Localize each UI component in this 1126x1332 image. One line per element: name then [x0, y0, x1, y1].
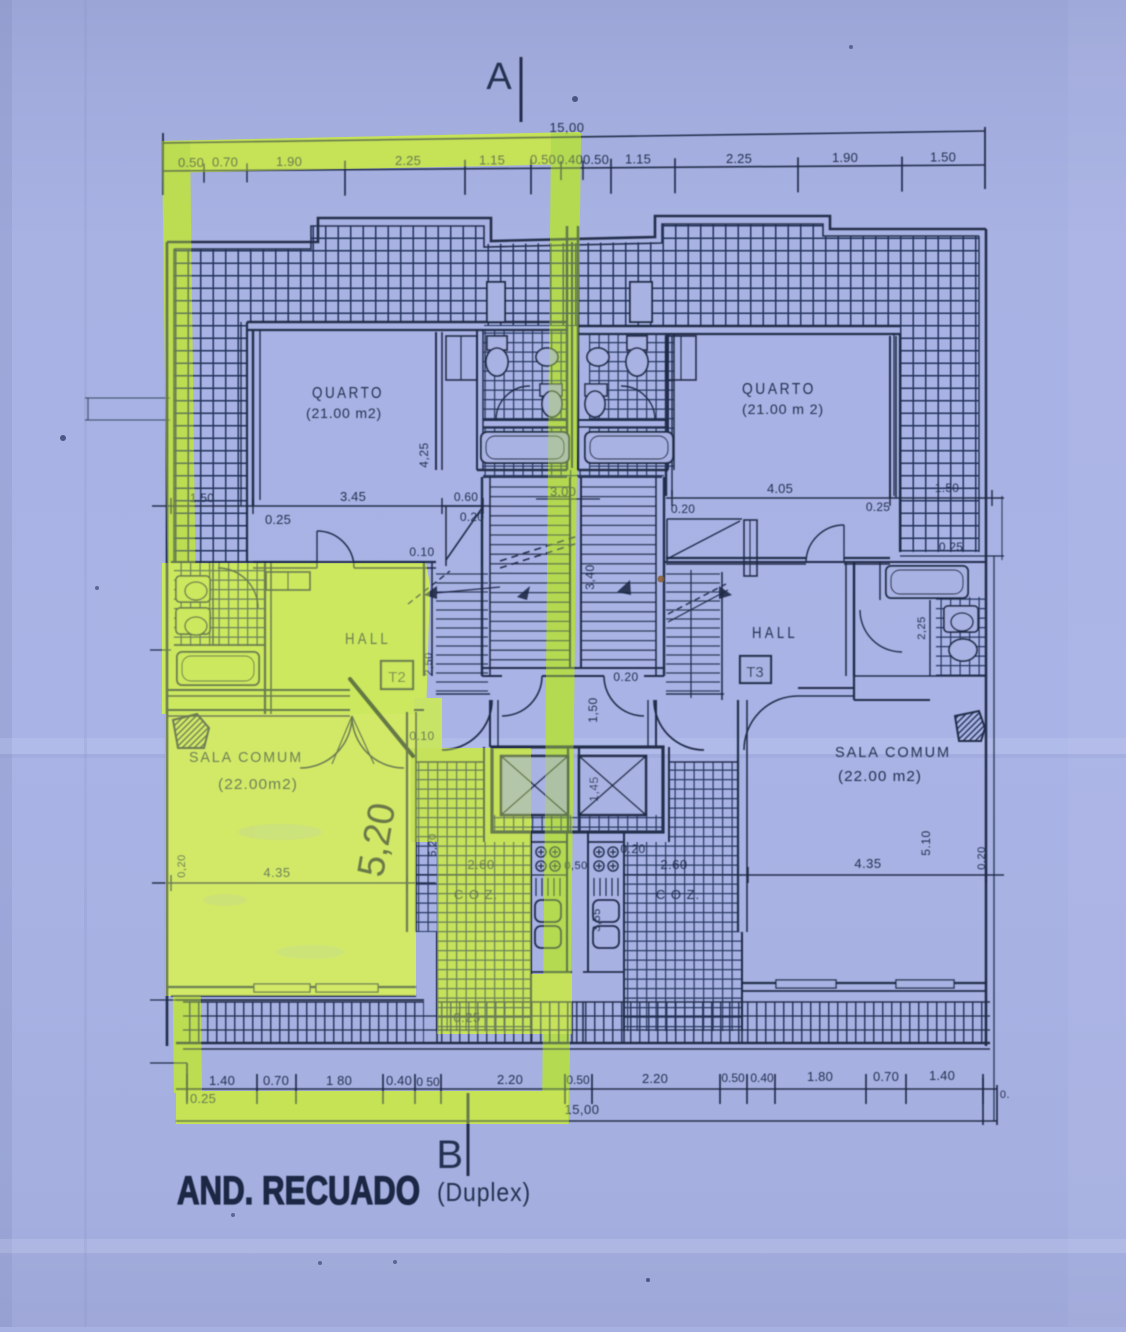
svg-text:0.60: 0.60: [454, 490, 478, 504]
svg-text:2.20: 2.20: [642, 1071, 668, 1086]
svg-text:0.20: 0.20: [671, 502, 695, 516]
svg-text:1.50: 1.50: [930, 149, 956, 164]
svg-text:2.20: 2.20: [497, 1072, 523, 1087]
svg-text:T3: T3: [746, 664, 764, 681]
svg-text:4.35: 4.35: [854, 856, 881, 871]
svg-text:5.10: 5.10: [919, 830, 933, 855]
svg-text:0.50: 0.50: [583, 152, 609, 167]
svg-text:1.40: 1.40: [929, 1068, 955, 1083]
svg-text:(Duplex): (Duplex): [437, 1177, 531, 1207]
svg-text:0.20: 0.20: [620, 842, 645, 856]
svg-text:0.50: 0.50: [721, 1071, 745, 1085]
svg-text:1 80: 1 80: [326, 1073, 352, 1088]
svg-text:0,20: 0,20: [976, 846, 988, 869]
svg-text:2.25: 2.25: [726, 151, 752, 166]
svg-text:A: A: [486, 56, 512, 98]
svg-text:3.45: 3.45: [340, 489, 366, 504]
svg-text:4.05: 4.05: [767, 481, 793, 496]
svg-text:1,50: 1,50: [586, 697, 600, 722]
svg-text:HALL: HALL: [752, 625, 798, 642]
svg-text:2.60: 2.60: [660, 857, 687, 872]
svg-text:1.90: 1.90: [832, 150, 858, 165]
svg-text:0 50: 0 50: [416, 1075, 440, 1089]
svg-text:(22.00 m2): (22.00 m2): [838, 768, 922, 785]
svg-text:4,25: 4,25: [417, 442, 431, 467]
svg-text:0.40: 0.40: [386, 1073, 412, 1088]
svg-text:0.20: 0.20: [613, 670, 638, 684]
svg-text:0.10: 0.10: [409, 545, 434, 559]
svg-text:0.25: 0.25: [939, 540, 963, 554]
svg-text:0.: 0.: [1000, 1089, 1010, 1101]
svg-text:C O Z.: C O Z.: [656, 887, 700, 902]
svg-text:0.70: 0.70: [263, 1073, 289, 1088]
svg-text:1.15: 1.15: [625, 152, 651, 167]
svg-text:B: B: [436, 1133, 463, 1177]
svg-text:(21.00 m 2): (21.00 m 2): [742, 401, 824, 417]
svg-text:0.40: 0.40: [750, 1071, 774, 1085]
svg-text:0.70: 0.70: [873, 1069, 899, 1084]
svg-text:0.25: 0.25: [866, 500, 890, 514]
svg-text:1.40: 1.40: [209, 1073, 235, 1088]
svg-text:QUARTO: QUARTO: [312, 385, 384, 402]
svg-text:1.80: 1.80: [807, 1069, 833, 1084]
svg-text:AND. RECUADO: AND. RECUADO: [177, 1169, 420, 1213]
svg-text:SALA COMUM: SALA COMUM: [835, 744, 951, 761]
svg-text:1.50: 1.50: [935, 481, 959, 495]
svg-text:3,40: 3,40: [583, 564, 597, 589]
svg-text:1,45: 1,45: [587, 776, 601, 801]
svg-text:3,55: 3,55: [591, 908, 603, 931]
svg-text:15,00: 15,00: [564, 1102, 599, 1117]
svg-text:0.50: 0.50: [566, 1073, 590, 1087]
svg-text:QUARTO: QUARTO: [742, 381, 816, 398]
svg-text:2,25: 2,25: [916, 616, 928, 639]
svg-text:0.25: 0.25: [265, 512, 291, 527]
svg-text:(21.00 m2): (21.00 m2): [306, 405, 382, 421]
